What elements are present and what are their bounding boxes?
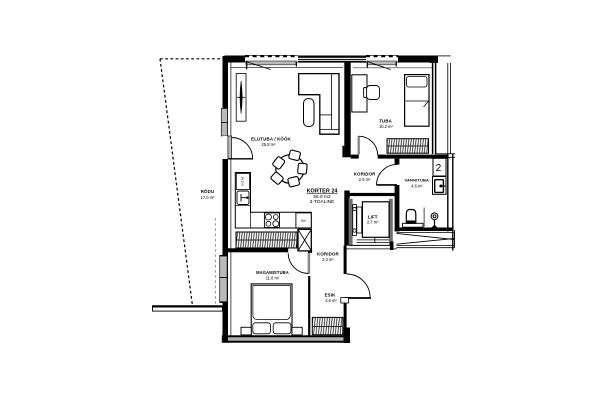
- svg-text:10.2 m²: 10.2 m²: [379, 124, 394, 129]
- svg-text:KÜLM: KÜLM: [241, 177, 245, 186]
- svg-text:VANNITUBA: VANNITUBA: [404, 178, 429, 183]
- svg-text:TUBA: TUBA: [379, 118, 392, 123]
- svg-text:2: 2: [436, 163, 442, 174]
- svg-text:2.7 m²: 2.7 m²: [367, 220, 379, 225]
- svg-text:MAGAMISTUBA: MAGAMISTUBA: [256, 270, 289, 275]
- svg-text:2.6 m²: 2.6 m²: [325, 298, 337, 303]
- svg-text:ESIK: ESIK: [325, 292, 337, 297]
- svg-text:KORIDOR: KORIDOR: [317, 251, 339, 256]
- svg-text:11.8 m²: 11.8 m²: [266, 276, 280, 281]
- svg-text:25.8 m²: 25.8 m²: [262, 142, 277, 147]
- svg-text:2.3 m²: 2.3 m²: [322, 257, 334, 262]
- svg-text:4.6 m²: 4.6 m²: [411, 184, 423, 189]
- svg-text:RÕDU: RÕDU: [201, 189, 215, 194]
- svg-text:KK: KK: [301, 219, 306, 223]
- svg-text:KORIDOR: KORIDOR: [354, 172, 376, 177]
- svg-text:2.5 m²: 2.5 m²: [359, 177, 371, 182]
- svg-text:ELUTUBA / KÖÖK: ELUTUBA / KÖÖK: [251, 137, 291, 142]
- svg-text:17.0 m²: 17.0 m²: [201, 195, 216, 200]
- svg-text:KORTER 24: KORTER 24: [307, 188, 339, 194]
- svg-text:3-TOALINE: 3-TOALINE: [310, 199, 335, 205]
